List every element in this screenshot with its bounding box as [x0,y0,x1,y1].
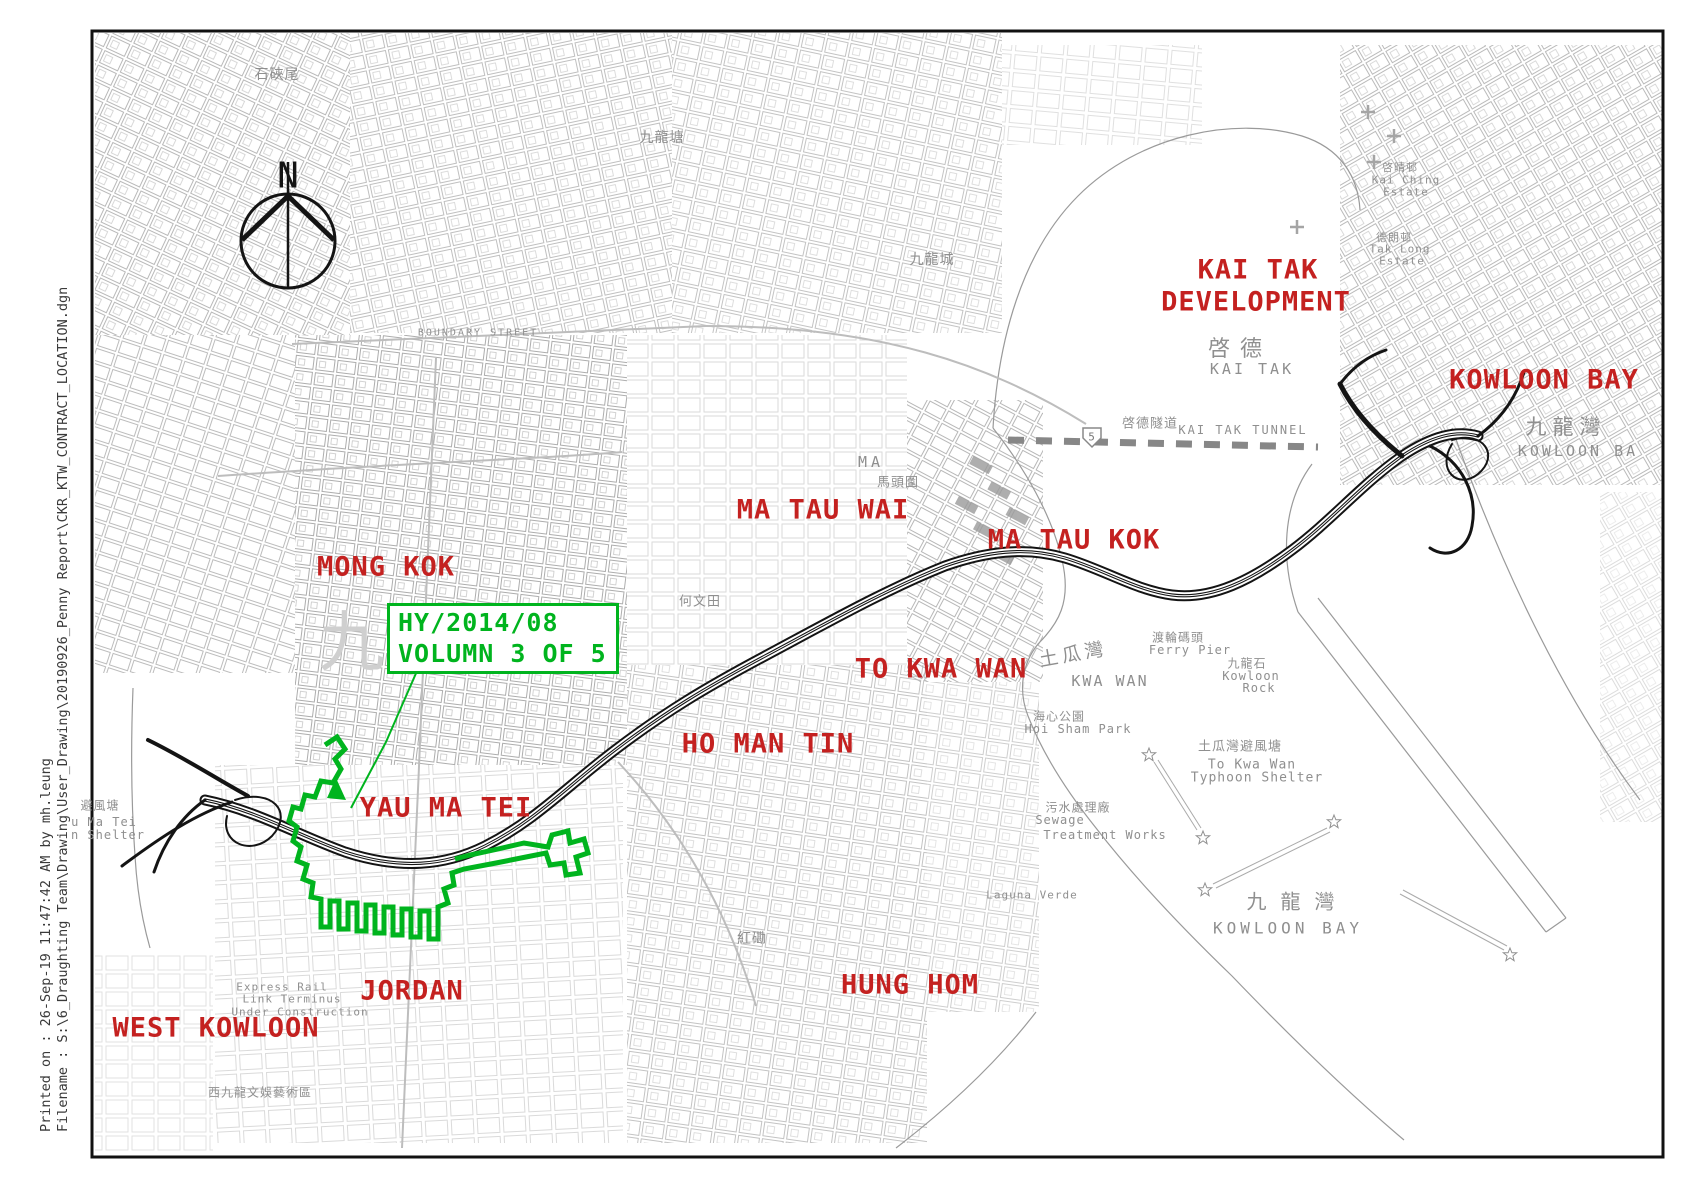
district-label-yau-ma-tei: YAU MA TEI [360,793,533,824]
district-label-kai-tak-development: DEVELOPMENT [1161,287,1351,318]
map-label: 5 [1088,431,1096,444]
map-label: 西九龍文娛藝術區 [208,1084,312,1101]
map-label: 九龍灣 [1526,411,1607,441]
map-label: BOUNDARY STREET [418,328,538,339]
map-label: KWA WAN [1071,672,1148,690]
map-label: Laguna Verde [986,889,1077,902]
map-label: Estate [1379,255,1425,268]
map-label: 九 [319,589,386,685]
map-label: KAI TAK TUNNEL [1178,423,1307,437]
map-label: Ferry Pier [1149,643,1231,657]
map-label: 九龍城 [910,249,955,269]
print-info: Printed on : 26-Sep-19 11:47:42 AM by mh… [38,287,72,1132]
map-label: n Shelter [71,828,145,842]
map-label: 九龍塘 [640,127,685,147]
contract-label-box: HY/2014/08 VOLUMN 3 OF 5 [387,603,619,674]
map-label: KOWLOON BA [1518,442,1638,460]
map-label: 何文田 [679,591,721,610]
map-label: Hoi Sham Park [1025,722,1132,736]
district-label-jordan: JORDAN [360,976,464,1007]
map-label: KAI TAK [1210,360,1294,378]
map-label: Treatment Works [1043,828,1166,842]
district-label-west-kowloon: WEST KOWLOON [112,1013,319,1044]
map-label: 九 龍 灣 [1246,886,1335,915]
north-arrow-label: N [277,156,299,197]
map-label: Typhoon Shelter [1191,771,1323,786]
map-label: 避風塘 [80,797,119,814]
district-label-kai-tak: KAI TAK [1198,255,1319,286]
map-label: Link Terminus [242,993,341,1006]
district-label-ma-tau-wai: MA TAU WAI [737,495,910,526]
map-label: 土瓜灣避風塘 [1198,736,1282,755]
district-label-ma-tau-kok: MA TAU KOK [988,525,1161,556]
map-label: KOWLOON BAY [1213,919,1363,938]
contract-volume: VOLUMN 3 OF 5 [398,638,616,669]
map-label: 啓德隧道 [1122,413,1178,432]
map-label: Sewage [1035,813,1084,827]
district-label-ho-man-tin: HO MAN TIN [682,729,855,760]
map-label: u Ma Tei [71,815,137,829]
filename-line: Filename : S:\6_Draughting Team\Drawing\… [55,287,72,1132]
map-label: 紅磡 [737,928,767,948]
map-label: MA [858,453,884,471]
map-label: Rock [1243,681,1276,695]
contract-number: HY/2014/08 [398,607,616,638]
map-label: 馬頭圍 [877,472,919,491]
district-label-to-kwa-wan: TO KWA WAN [855,654,1028,685]
district-label-mong-kok: MONG KOK [317,552,455,583]
kai-tak-tunnel-dashes [1008,440,1318,447]
printed-on-line: Printed on : 26-Sep-19 11:47:42 AM by mh… [38,287,55,1132]
map-label: 石硤尾 [255,64,300,84]
district-label-hung-hom: HUNG HOM [841,970,979,1001]
district-label-kowloon-bay-north: KOWLOON BAY [1449,365,1639,396]
map-label: Estate [1383,186,1429,199]
map-canvas: Printed on : 26-Sep-19 11:47:42 AM by mh… [0,0,1684,1190]
map-label: 啓德 [1208,331,1272,363]
